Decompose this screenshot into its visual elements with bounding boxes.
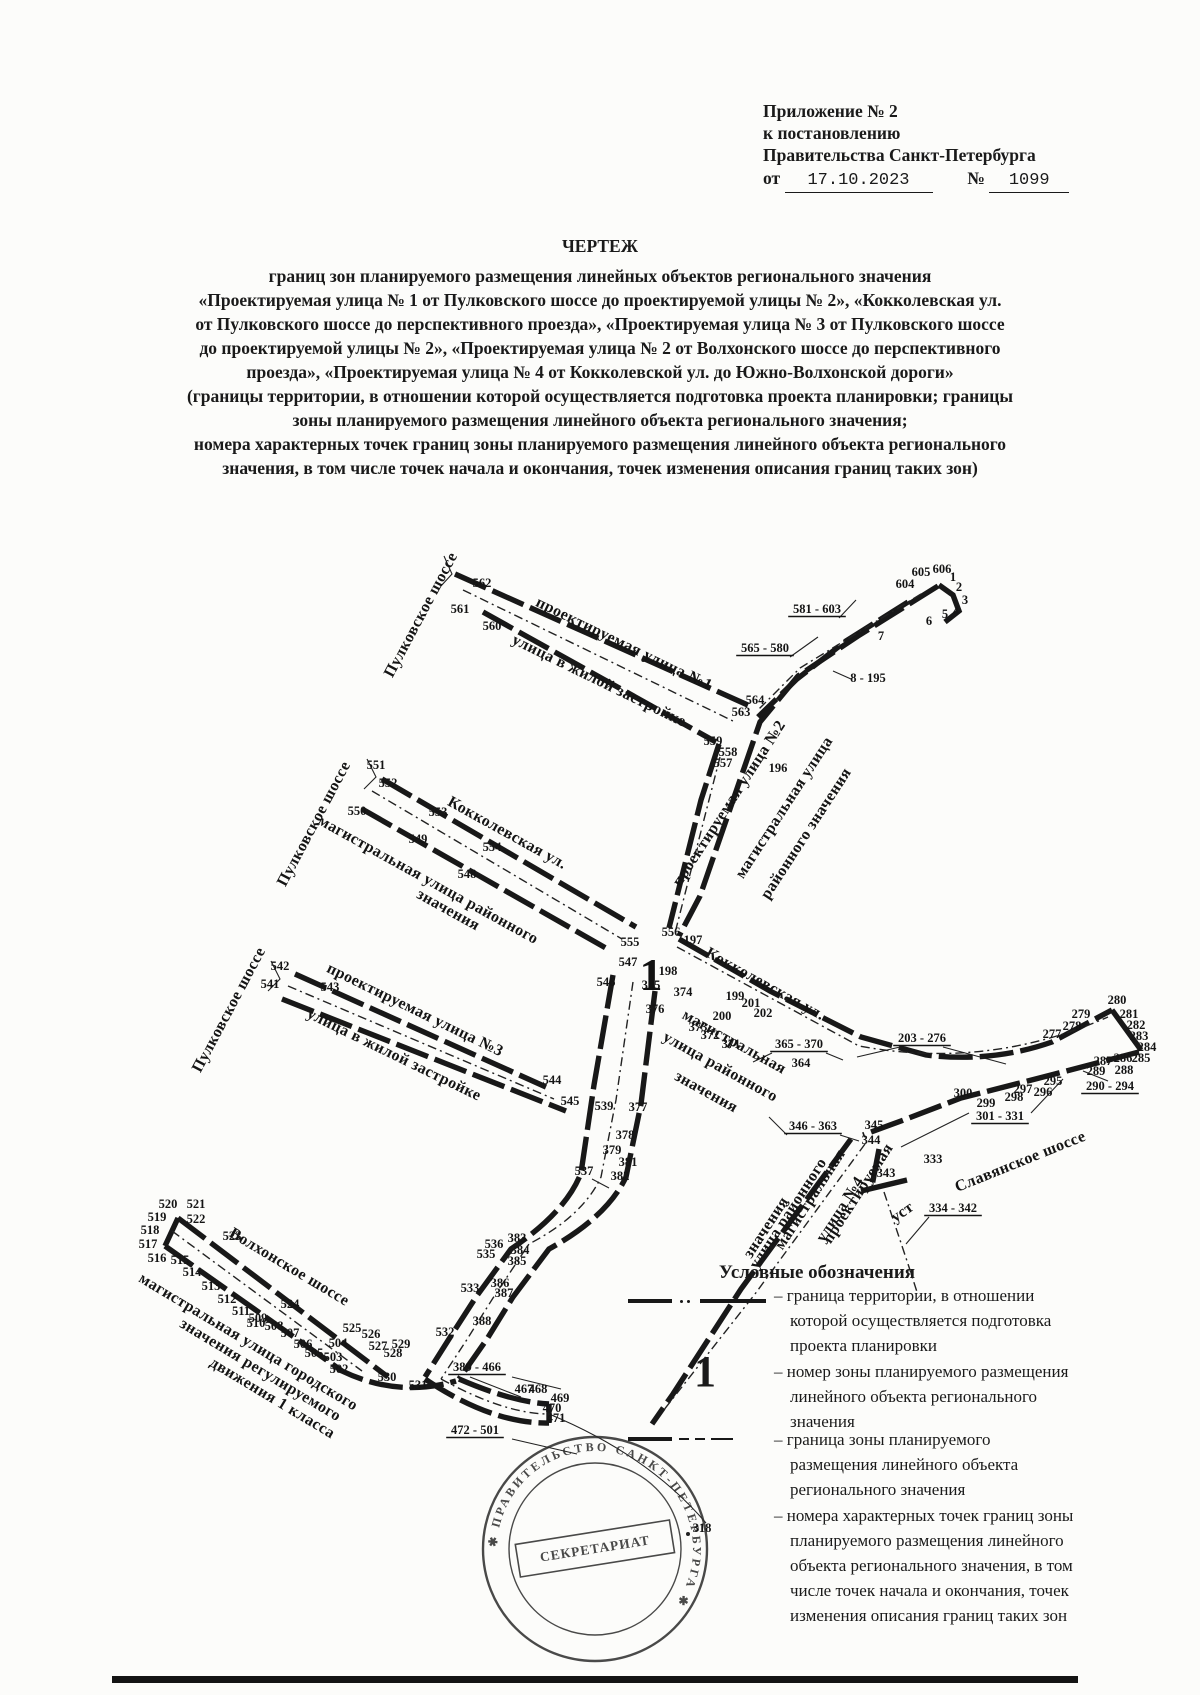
point-label: 374 [674,985,694,999]
point-label: 554 [483,840,503,854]
point-label: 513 [202,1279,221,1293]
legend-item-line: планируемого размещения линейного [790,1528,1100,1553]
street-name-label: Пулковское шоссе [189,944,269,1075]
point-label: 502 [330,1362,349,1376]
leader [839,600,856,618]
point-label: 298 [1005,1090,1024,1104]
point-label: 525 [343,1321,362,1335]
bottom-rule [112,1676,1078,1683]
street-name-label: уст [888,1199,917,1227]
point-label: 562 [473,576,492,590]
territory-line-symbol [628,1299,768,1303]
point-label: 560 [483,619,502,633]
point-label: 547 [619,955,638,969]
point-label: 517 [139,1237,158,1251]
street-name-label: Кокколевская ул. [445,793,570,873]
point-label: 535 [477,1247,496,1261]
point-label: 543 [321,980,340,994]
legend-item-territory: граница территории, в отношениикоторой о… [790,1283,1100,1358]
point-label: 289 [1087,1064,1106,1078]
point-label: 546 [597,975,616,989]
point-label: 385 [508,1254,527,1268]
legend-item-line: числе точек начала и окончания, точек [790,1578,1100,1603]
point-label: 277 [1043,1027,1062,1041]
leader [592,1179,609,1188]
point-label: 516 [148,1251,167,1265]
point-label: 504 [329,1336,349,1350]
point-label: 537 [575,1164,594,1178]
territory-street1 [463,590,733,721]
point-label: 381 [619,1155,638,1169]
leader [833,671,851,679]
point-label: 521 [187,1197,206,1211]
document-page: Приложение № 2 к постановлению Правитель… [0,0,1200,1695]
legend-item-line: размещения линейного объекта [790,1452,1100,1477]
point-label: 333 [924,1152,943,1166]
point-label: 549 [409,832,428,846]
point-label: 519 [148,1210,167,1224]
point-label: 197 [684,933,703,947]
point-label: 531 [409,1378,428,1392]
legend-item-line: линейного объекта регионального [790,1384,1100,1409]
point-label: 556 [662,925,681,939]
point-label: 318 [693,1521,712,1535]
kokkolevskaya-west-upper [382,779,636,927]
point-label: 377 [629,1100,648,1114]
point-label: 518 [141,1223,160,1237]
legend-item-line: которой осуществляется подготовка [790,1308,1100,1333]
leader [826,1053,843,1060]
point-label: 388 [473,1314,492,1328]
point-label: 532 [436,1325,455,1339]
point-label: 514 [183,1265,203,1279]
legend-item-line: проекта планировки [790,1333,1100,1358]
point-label: 520 [159,1197,178,1211]
point-label: 533 [461,1281,480,1295]
leader [906,1217,929,1244]
point-label: 5 [942,607,948,621]
point-label: 382 [611,1169,630,1183]
point-label: 557 [714,756,733,770]
point-label: 2 [956,580,962,594]
point-label: 561 [451,602,470,616]
point-label: 550 [348,804,367,818]
legend-item-line: граница территории, в отношении [790,1283,1100,1308]
point-label: 202 [754,1006,773,1020]
legend-item-line: граница зоны планируемого [790,1427,1100,1452]
point-label: 280 [1108,993,1127,1007]
official-stamp: ✱ ПРАВИТЕЛЬСТВО САНКТ-ПЕТЕРБУРГА ✱ СЕКРЕ… [483,1437,707,1661]
legend-item-line: регионального значения [790,1477,1100,1502]
point-label: 544 [543,1073,563,1087]
legend-item-line: изменения описания границ таких зон [790,1603,1100,1628]
point-label: 505 [305,1346,324,1360]
point-label: 299 [977,1096,996,1110]
zone-number-symbol: 1 [694,1346,716,1397]
street-name-label: Славянское шоссе [952,1128,1088,1196]
point-label: 555 [621,935,640,949]
street-name-label: проектируемая улица №1 [533,594,715,694]
point-label: 345 [865,1118,884,1132]
street-name-label: проектируемая улица №3 [324,960,506,1060]
point-label: 376 [646,1002,665,1016]
point-label: 6 [926,614,932,628]
point-label: 541 [261,977,280,991]
street-name-label: значения регулируемого [177,1315,344,1425]
point-label: 542 [271,959,290,973]
zone-line-symbol [628,1437,768,1441]
legend-item-line: номера характерных точек границ зоны [790,1503,1100,1528]
point-label: 344 [862,1133,882,1147]
leader [857,1047,900,1057]
point-label: 548 [458,867,477,881]
point-label: 528 [384,1346,403,1360]
point-label: 296 [1034,1085,1053,1099]
volkhonskoe-cap [165,1218,178,1246]
point-label: 8 - 195 [850,671,885,685]
point-label: 387 [495,1286,514,1300]
legend-title: Условные обозначения [617,1262,1017,1284]
point-label: 378 [616,1128,635,1142]
point-label: 468 [529,1382,548,1396]
point-label: 4 [953,604,960,618]
point-label: 552 [379,776,398,790]
point-label: 604 [896,577,916,591]
point-label: 530 [378,1370,397,1384]
point-label: 203 - 276 [898,1031,946,1045]
street-name-label: улица в жилой застройке [509,631,689,730]
point-label: 7 [878,629,884,643]
point-label: 471 [547,1411,566,1425]
point-label: 285 [1132,1051,1151,1065]
point-label: 563 [732,705,751,719]
point-label: 522 [187,1212,206,1226]
zone-number-label: 1 [640,949,663,1000]
point-label: 3 [962,593,968,607]
legend-item-zone-line: граница зоны планируемогоразмещения лине… [790,1427,1100,1502]
point-label: 551 [367,758,386,772]
point-label: 301 - 331 [976,1109,1024,1123]
leader [769,1117,787,1135]
point-label: 290 - 294 [1086,1079,1135,1093]
legend-item-zone-number: номер зоны планируемого размещениялинейн… [790,1359,1100,1434]
point-label: 334 - 342 [929,1201,977,1215]
legend-item-point-numbers: номера характерных точек границ зоныплан… [790,1503,1100,1628]
point-label: 565 - 580 [741,641,789,655]
legend-item-line: номер зоны планируемого размещения [790,1359,1100,1384]
point-label: 472 - 501 [451,1423,499,1437]
leader [790,637,818,657]
point-label: 278 [1063,1019,1082,1033]
point-label: 581 - 603 [793,602,841,616]
street-name-label: Пулковское шоссе [381,549,461,680]
point-label: 524 [281,1297,301,1311]
point-label: 364 [792,1056,812,1070]
point-label: 389 - 466 [453,1360,501,1374]
point-label: 606 [933,562,952,576]
point-label: 288 [1115,1063,1134,1077]
point-label: 196 [769,761,788,775]
point-label: 545 [561,1094,580,1108]
point-label: 300 [954,1086,973,1100]
point-label: 539 [595,1099,614,1113]
point-label: 346 - 363 [789,1119,837,1133]
street-name-label: проектируемая улица №2 [669,718,789,890]
point-label: 279 [1072,1007,1091,1021]
point-label: 605 [912,565,931,579]
point-label: 365 - 370 [775,1037,823,1051]
legend-item-line: объекта регионального значения, в том [790,1553,1100,1578]
